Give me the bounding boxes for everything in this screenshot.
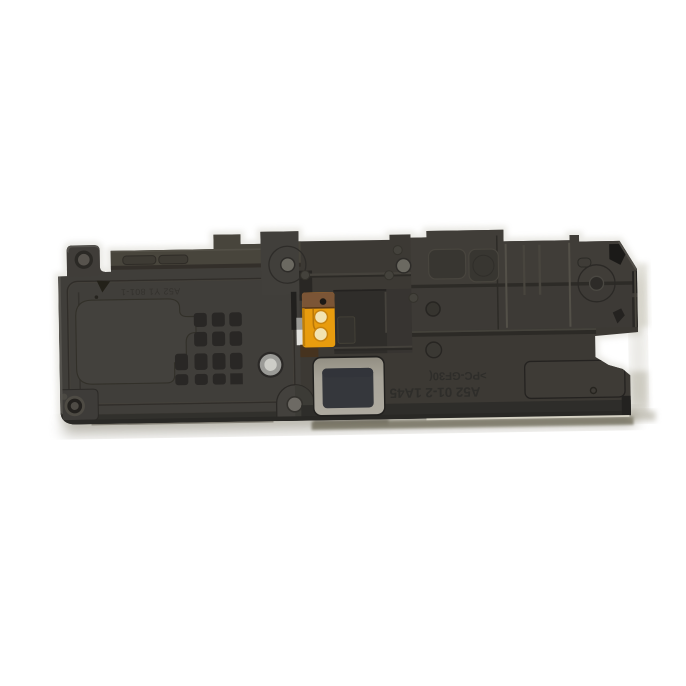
svg-text:>PC-GF30(: >PC-GF30(: [429, 369, 487, 382]
svg-text:A52 01-2 1A45: A52 01-2 1A45: [389, 384, 481, 401]
svg-text:A52 Y1 801-1: A52 Y1 801-1: [120, 286, 180, 297]
